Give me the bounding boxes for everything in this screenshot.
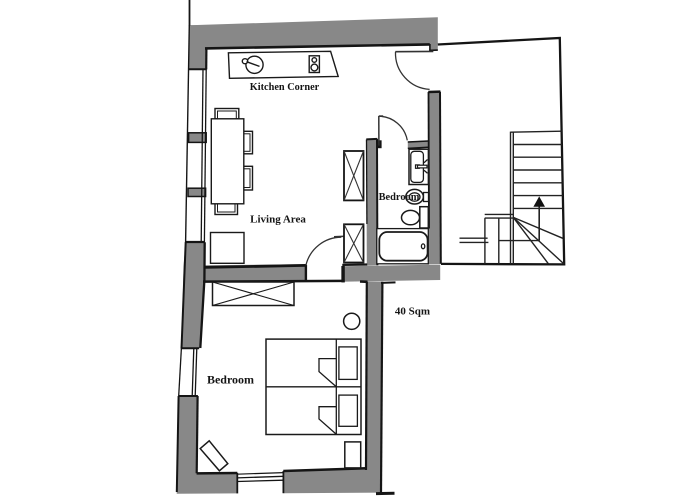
- svg-text:Living Area: Living Area: [250, 214, 306, 226]
- svg-text:Kitchen Corner: Kitchen Corner: [250, 82, 320, 93]
- svg-text:Bedroom: Bedroom: [207, 373, 254, 387]
- svg-text:Bedroom: Bedroom: [379, 192, 420, 203]
- svg-text:40 Sqm: 40 Sqm: [395, 306, 430, 318]
